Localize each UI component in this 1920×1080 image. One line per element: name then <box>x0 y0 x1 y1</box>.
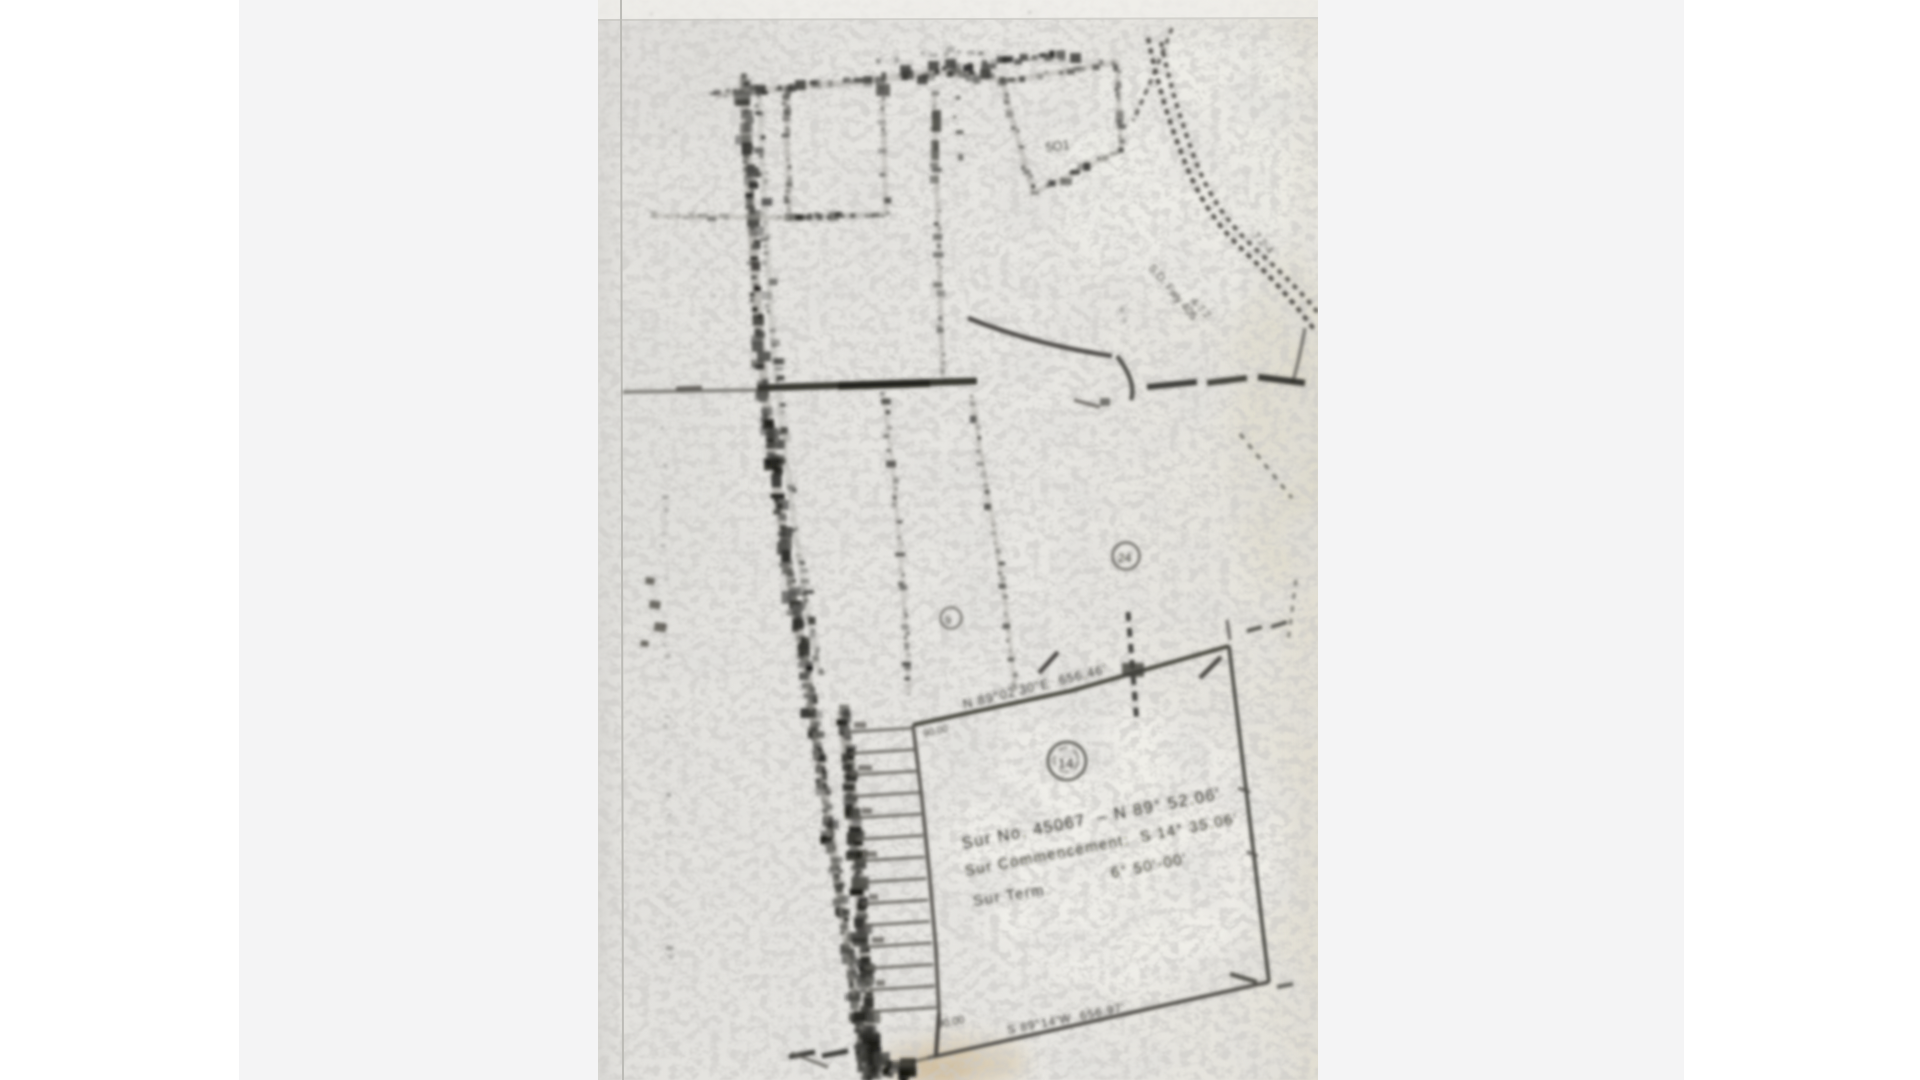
svg-text:9: 9 <box>945 615 951 627</box>
svg-text:24: 24 <box>1118 551 1132 565</box>
svg-text:14: 14 <box>1058 755 1074 771</box>
